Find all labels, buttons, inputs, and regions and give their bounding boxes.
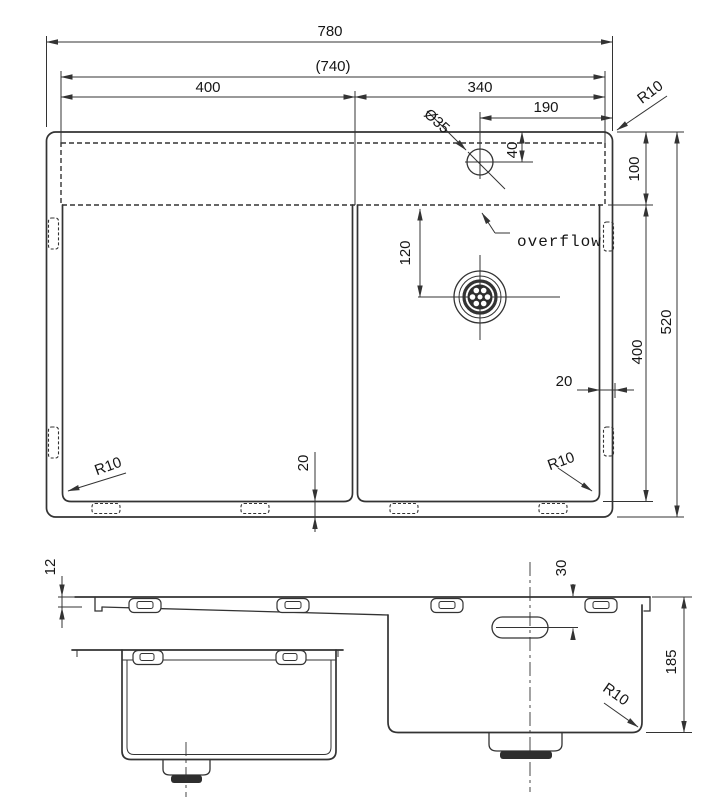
- radius-bottom-right-label: R10: [545, 449, 577, 474]
- plan-view: Ø35 780 (740) 400 340 190 40: [47, 23, 685, 532]
- drain-plan: [418, 209, 560, 340]
- dim-rim-right: 20: [556, 373, 573, 390]
- overflow-callout: [482, 213, 510, 233]
- dim-faucet-from-right: 190: [533, 99, 558, 116]
- left-bowl-section: [72, 650, 343, 760]
- radius-top-right-label: R10: [634, 77, 666, 107]
- sink-drawing: Ø35 780 (740) 400 340 190 40: [0, 0, 718, 800]
- cutout-dashed-outline: [61, 143, 605, 205]
- dim-rim-thickness: 12: [42, 559, 59, 576]
- dim-faucet-from-top: 40: [504, 142, 521, 159]
- technical-drawing-canvas: Ø35 780 (740) 400 340 190 40: [0, 0, 718, 800]
- mounting-clips-plan: [49, 218, 614, 514]
- left-drain-elevation: [163, 742, 210, 797]
- radius-elevation-label: R10: [600, 680, 632, 710]
- elevation-view: 12 30 185 R10: [42, 559, 692, 797]
- dim-overflow-from-top: 30: [553, 560, 570, 577]
- overflow-label: overflow: [517, 233, 602, 251]
- right-drain-elevation: [489, 733, 562, 760]
- dim-ledge-height: 100: [626, 156, 643, 181]
- dim-bowl-height: 400: [629, 339, 646, 364]
- right-bowl-section: [388, 605, 642, 733]
- dim-overall-height: 520: [658, 309, 675, 334]
- mounting-clips-elevation: [129, 599, 617, 665]
- rim-right-dimension: [577, 383, 634, 398]
- overflow-slot: [492, 584, 578, 640]
- dim-overall-width: 780: [317, 23, 342, 40]
- dim-right-bowl-width: 340: [467, 79, 492, 96]
- dim-bowl-depth: 185: [663, 649, 680, 674]
- dim-cutout-width: (740): [315, 58, 350, 75]
- dim-rim-bottom: 20: [295, 455, 312, 472]
- radius-callouts-plan: [68, 96, 667, 491]
- dim-left-bowl-width: 400: [195, 79, 220, 96]
- sink-outline: [47, 132, 613, 517]
- dim-drain-from-ledge: 120: [397, 240, 414, 265]
